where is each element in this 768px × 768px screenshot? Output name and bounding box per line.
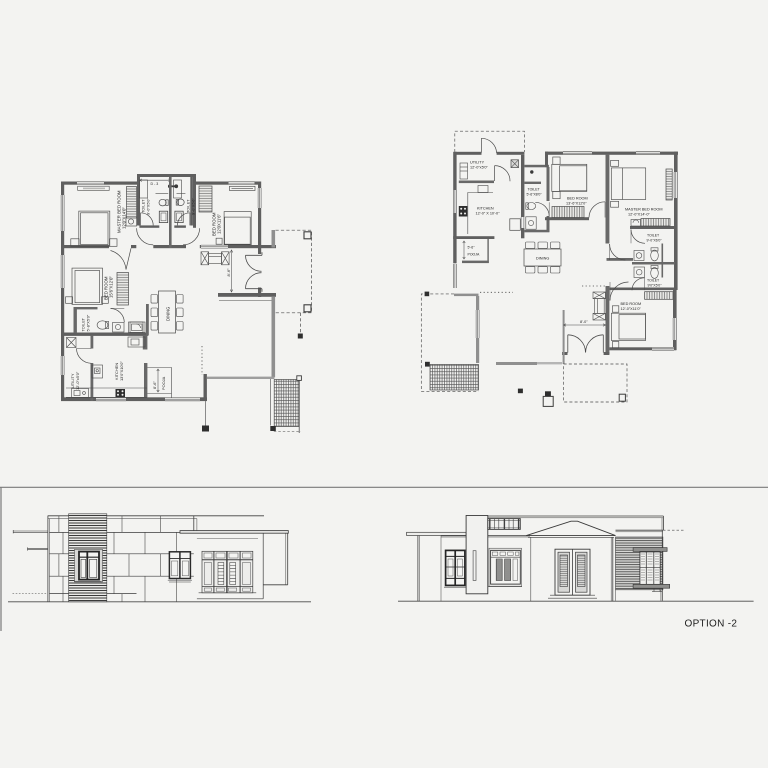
svg-text:12'0X11'6": 12'0X11'6" — [217, 213, 222, 234]
svg-text:8'-6": 8'-6" — [226, 268, 231, 277]
svg-text:12'-0"x5'0": 12'-0"x5'0" — [470, 166, 489, 170]
svg-text:9'0"X5'0": 9'0"X5'0" — [648, 284, 663, 288]
svg-text:UTILITY: UTILITY — [470, 161, 485, 165]
svg-text:12'-0"x5'0": 12'-0"x5'0" — [75, 371, 80, 390]
svg-text:9'-0"X6'0": 9'-0"X6'0" — [647, 239, 663, 243]
svg-text:9'-0"X5'0": 9'-0"X5'0" — [146, 198, 151, 215]
svg-text:8'-0": 8'-0" — [580, 320, 588, 324]
svg-text:BED ROOM: BED ROOM — [621, 302, 642, 306]
svg-text:KITCHEN: KITCHEN — [477, 207, 494, 211]
svg-text:5'-6": 5'-6" — [468, 246, 476, 250]
svg-text:DINING: DINING — [536, 257, 549, 261]
svg-text:5'-8"X5'0": 5'-8"X5'0" — [86, 314, 91, 331]
svg-text:9'-0"X5'6": 9'-0"X5'6" — [191, 198, 196, 215]
svg-text:D - 3: D - 3 — [151, 182, 159, 186]
svg-text:BED ROOM: BED ROOM — [567, 197, 588, 201]
svg-text:5'-6"X8'0": 5'-6"X8'0" — [527, 193, 543, 197]
svg-text:12'-0"X14'-0": 12'-0"X14'-0" — [628, 213, 651, 217]
svg-text:8'-6": 8'-6" — [152, 381, 157, 389]
svg-text:12'-0"X11'0": 12'-0"X11'0" — [621, 307, 642, 311]
svg-text:TOILET: TOILET — [528, 188, 541, 192]
svg-text:MASTER BED ROOM: MASTER BED ROOM — [625, 208, 663, 212]
svg-text:POOJA: POOJA — [161, 376, 166, 390]
svg-text:POOJA: POOJA — [468, 253, 481, 257]
svg-text:15'6"X12'0": 15'6"X12'0" — [109, 276, 114, 298]
svg-text:12'-0" X 10'-0": 12'-0" X 10'-0" — [476, 212, 501, 216]
svg-text:13'0"X10'0": 13'0"X10'0" — [119, 361, 124, 381]
svg-text:DINING: DINING — [166, 307, 171, 321]
svg-text:13'-6"X12'0": 13'-6"X12'0" — [566, 202, 587, 206]
svg-text:TOILET: TOILET — [647, 279, 660, 283]
svg-text:TOILET: TOILET — [647, 234, 660, 238]
svg-text:12'0"X14'0": 12'0"X14'0" — [121, 207, 126, 229]
svg-text:OPTION -2: OPTION -2 — [685, 619, 738, 630]
